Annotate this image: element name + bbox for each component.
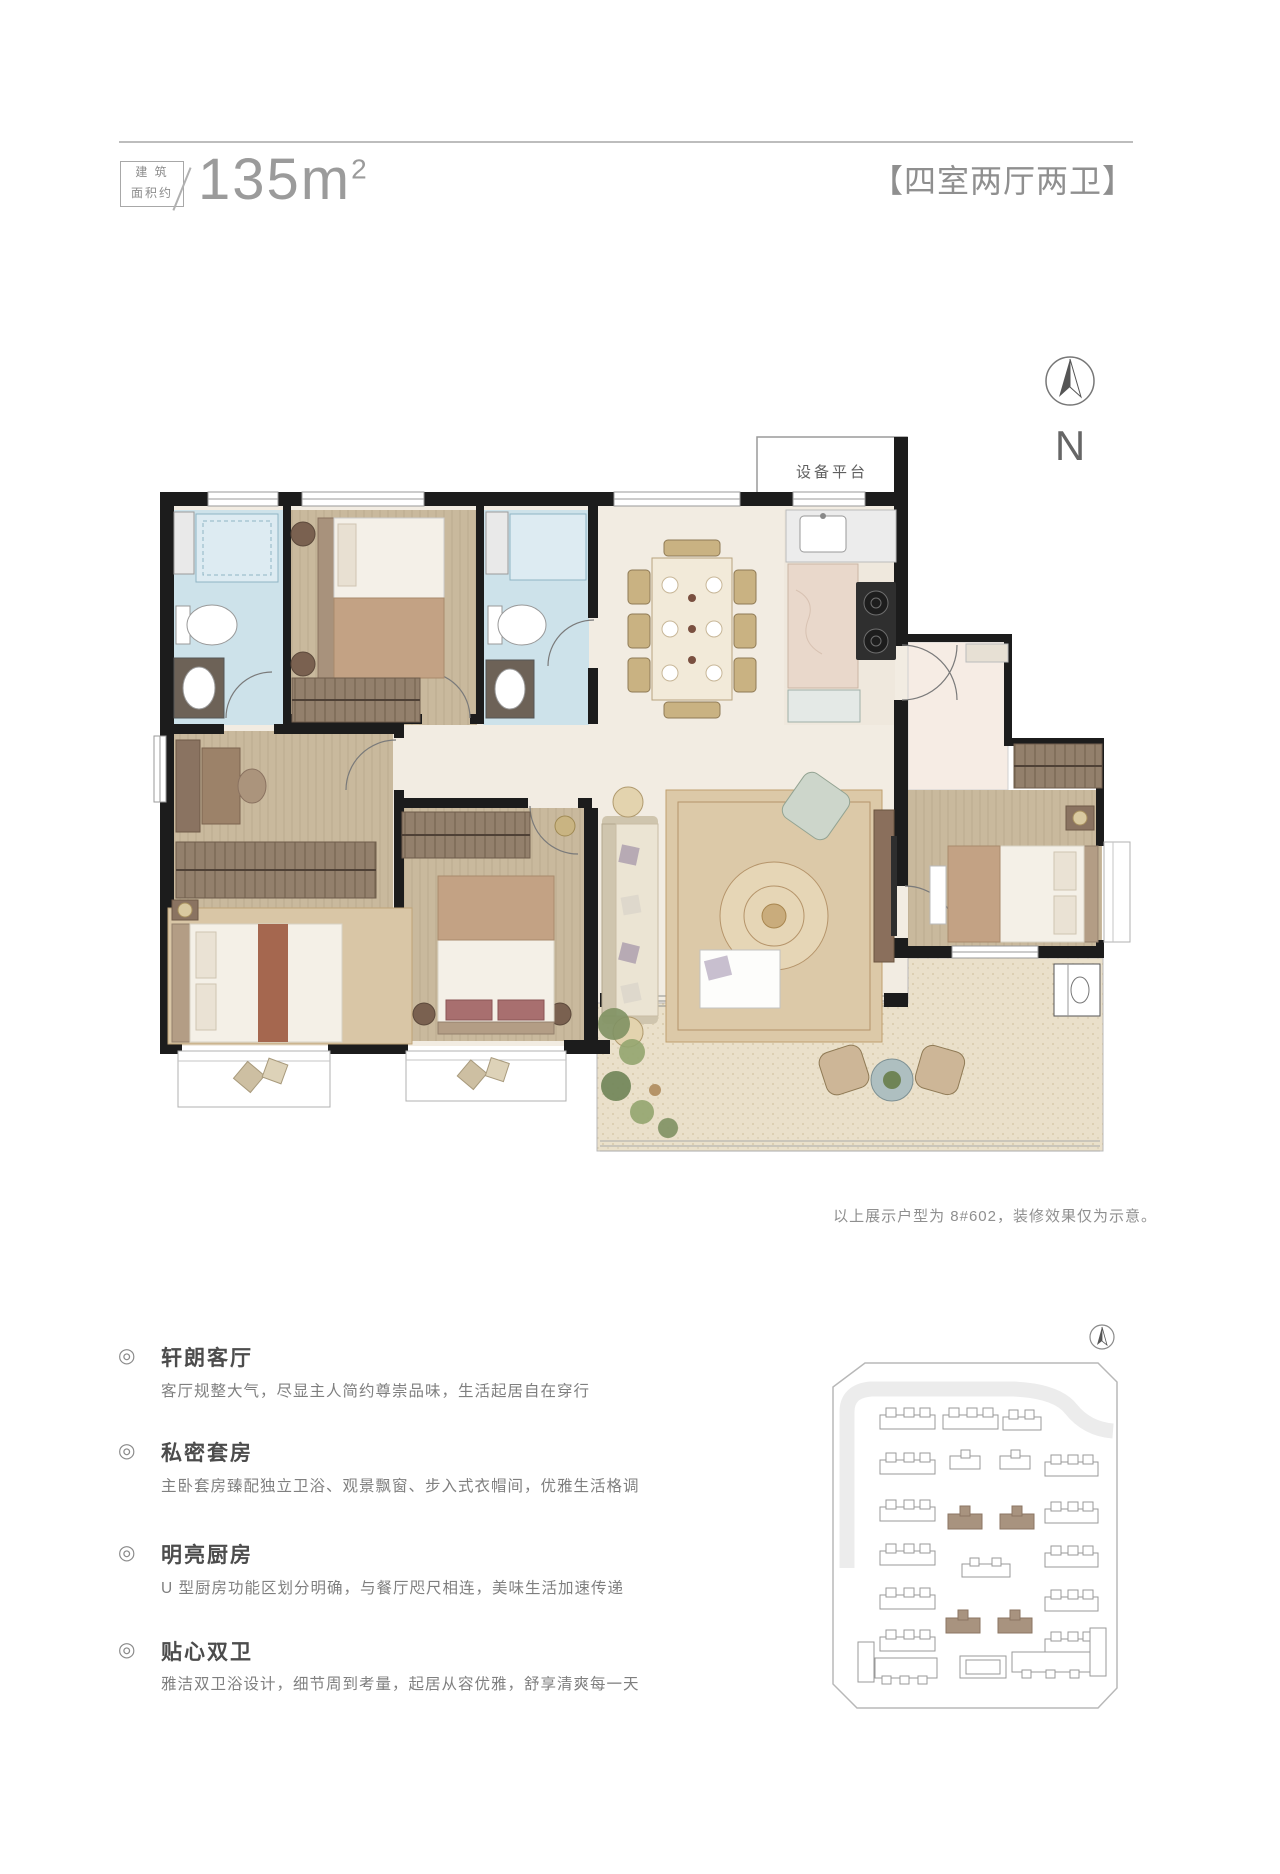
feature-desc-suite: 主卧套房臻配独立卫浴、观景飘窗、步入式衣帽间，优雅生活格调	[161, 1474, 640, 1496]
feature-bullet-icon: ◎	[118, 1438, 135, 1463]
feature-bullet-icon: ◎	[118, 1637, 135, 1662]
bay-window-bedroom4	[1104, 842, 1130, 942]
feature-bullet-icon: ◎	[118, 1343, 135, 1368]
bay-window-master	[178, 1051, 330, 1107]
feature-desc-living: 客厅规整大气，尽显主人简约尊崇品味，生活起居自在穿行	[161, 1379, 590, 1401]
site-compass-icon	[1090, 1325, 1114, 1349]
feature-title-kitchen: 明亮厨房	[161, 1539, 253, 1569]
feature-title-living: 轩朗客厅	[161, 1342, 253, 1372]
feature-title-baths: 贴心双卫	[161, 1636, 253, 1666]
plan-caption: 以上展示户型为 8#602，装修效果仅为示意。	[833, 1205, 1157, 1226]
floor-plan: 设备平台	[154, 357, 1130, 1151]
feature-desc-kitchen: U 型厨房功能区划分明确，与餐厅咫尺相连，美味生活加速传递	[161, 1576, 624, 1598]
entry-hall-floor	[908, 642, 1008, 790]
feature-desc-baths: 雅洁双卫浴设计，细节周到考量，起居从容优雅，舒享清爽每一天	[161, 1672, 640, 1694]
feature-title-suite: 私密套房	[161, 1437, 253, 1467]
bedroom4-south-window	[952, 946, 1038, 958]
left-window	[154, 736, 166, 802]
compass-icon	[1046, 357, 1094, 405]
equipment-platform-label: 设备平台	[796, 464, 868, 481]
brochure-page: 建 筑 面积约 135m2 【四室两厅两卫】 设备平台	[0, 0, 1280, 1874]
bay-window-bedroom3	[406, 1051, 566, 1101]
entry-furniture	[966, 644, 1008, 662]
site-plan	[833, 1325, 1117, 1708]
north-label: N	[1055, 422, 1085, 469]
equipment-platform: 设备平台	[757, 437, 907, 499]
feature-bullet-icon: ◎	[118, 1540, 135, 1565]
